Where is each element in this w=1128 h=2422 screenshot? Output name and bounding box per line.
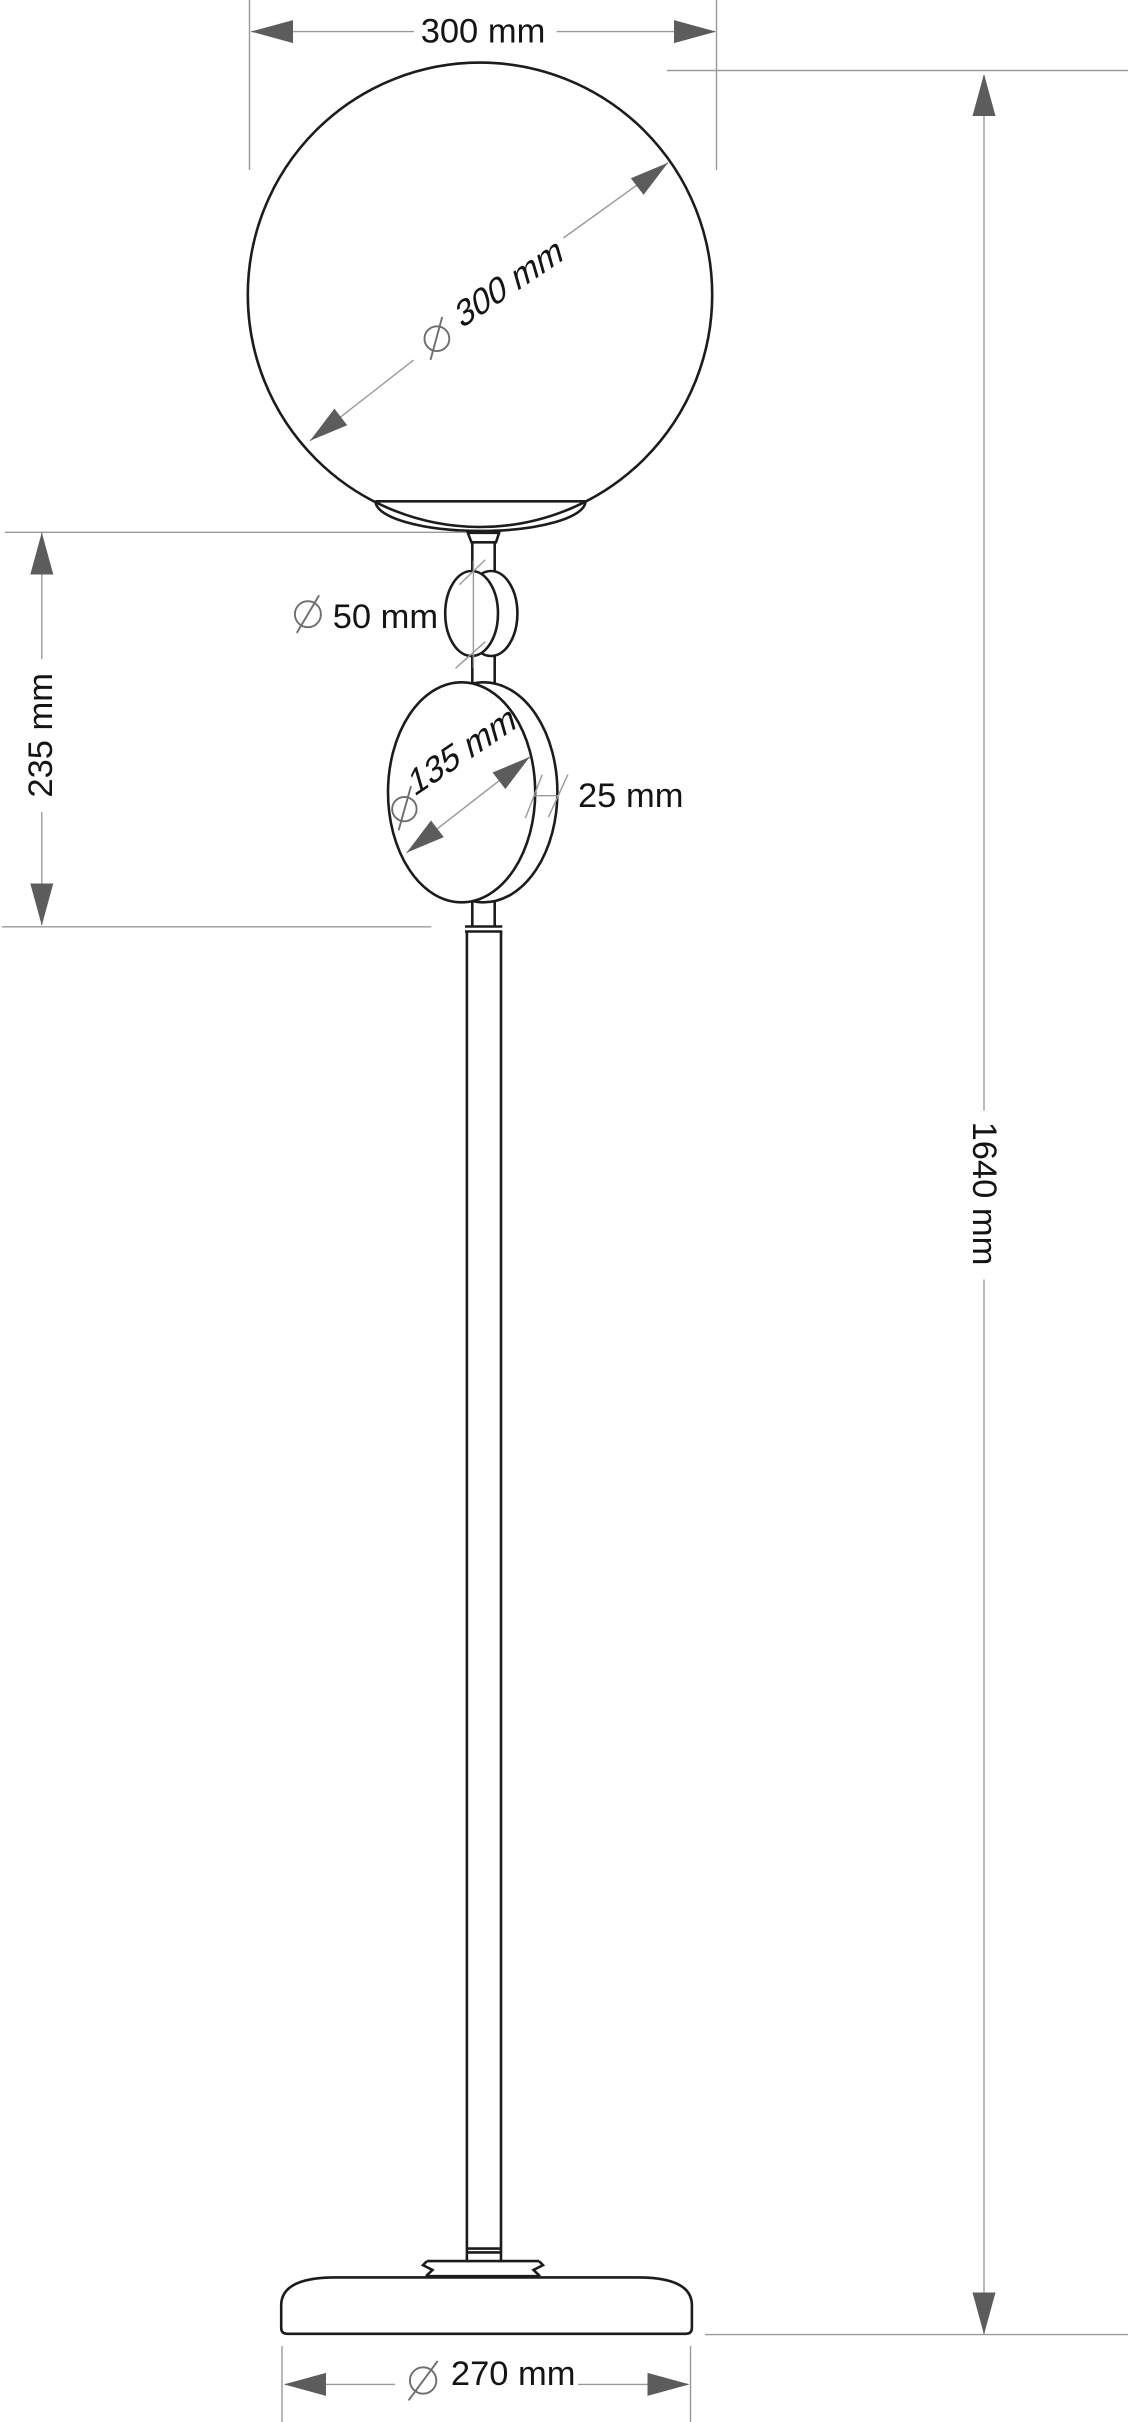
svg-text:1640 mm: 1640 mm bbox=[965, 1122, 1003, 1266]
svg-text:270 mm: 270 mm bbox=[451, 2355, 576, 2393]
svg-text:50 mm: 50 mm bbox=[333, 598, 438, 636]
svg-text:235 mm: 235 mm bbox=[22, 673, 60, 798]
svg-text:300 mm: 300 mm bbox=[421, 13, 546, 51]
svg-text:25 mm: 25 mm bbox=[578, 777, 683, 815]
